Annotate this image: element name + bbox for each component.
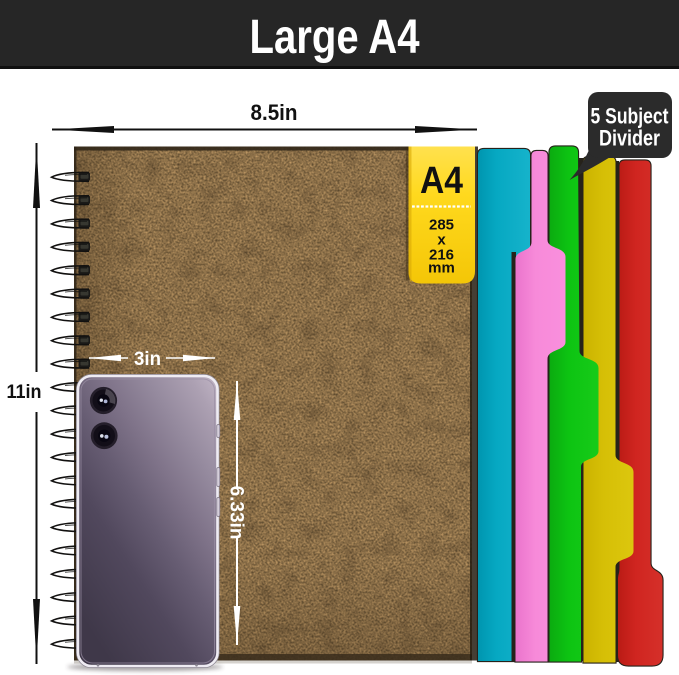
svg-text:3in: 3in (134, 349, 161, 370)
svg-text:Divider: Divider (599, 126, 660, 151)
svg-text:Large A4: Large A4 (250, 11, 420, 64)
svg-text:mm: mm (428, 260, 455, 277)
svg-text:6.33in: 6.33in (226, 486, 247, 540)
svg-text:A4: A4 (420, 160, 463, 202)
svg-text:8.5in: 8.5in (251, 100, 298, 125)
svg-text:11in: 11in (7, 382, 42, 403)
